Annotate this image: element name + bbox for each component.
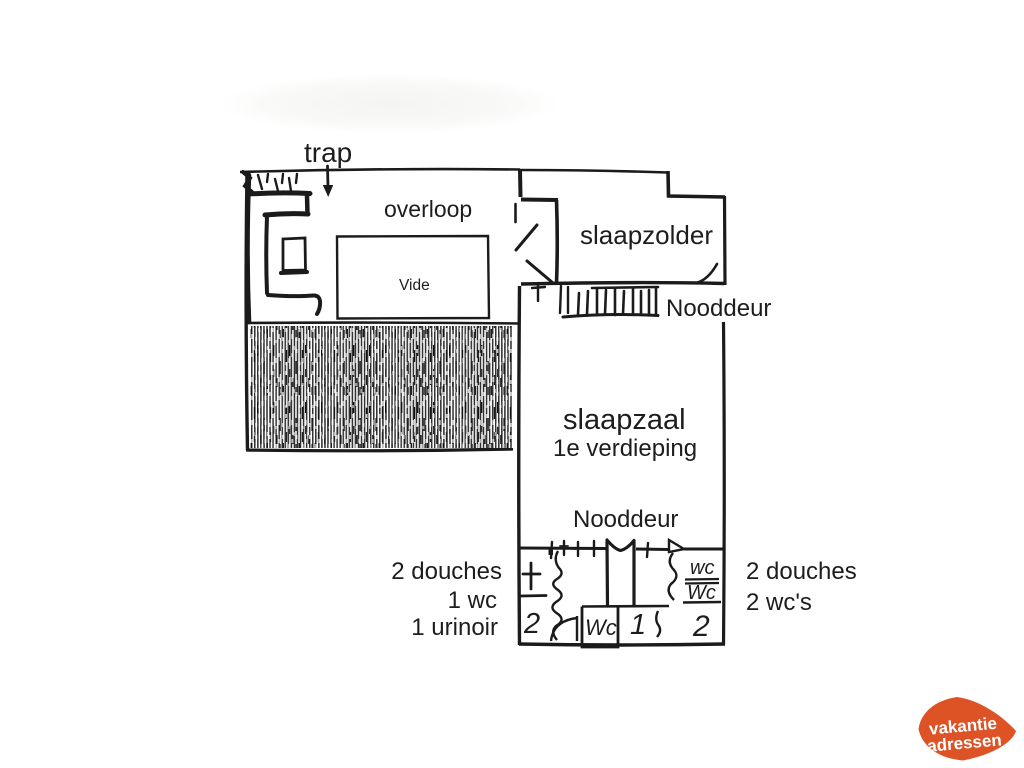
svg-text:wc: wc xyxy=(690,557,714,579)
svg-text:slaapzolder: slaapzolder xyxy=(580,220,713,250)
svg-text:Vide: Vide xyxy=(399,277,430,294)
svg-text:2: 2 xyxy=(692,610,710,643)
svg-text:2: 2 xyxy=(523,608,540,640)
svg-text:trap: trap xyxy=(304,137,352,168)
svg-text:2 douches: 2 douches xyxy=(746,558,857,585)
svg-text:slaapzaal: slaapzaal xyxy=(563,404,686,436)
svg-text:2 wc's: 2 wc's xyxy=(746,589,812,616)
svg-text:Wc: Wc xyxy=(585,615,617,640)
svg-text:Nooddeur: Nooddeur xyxy=(666,295,771,322)
svg-text:1: 1 xyxy=(630,609,646,641)
svg-text:overloop: overloop xyxy=(384,196,472,222)
svg-text:Nooddeur: Nooddeur xyxy=(573,506,678,533)
svg-text:1 wc: 1 wc xyxy=(448,587,497,614)
svg-text:1 urinoir: 1 urinoir xyxy=(411,614,498,641)
svg-text:2 douches: 2 douches xyxy=(391,558,502,585)
svg-text:Wc: Wc xyxy=(687,582,716,604)
svg-text:1e verdieping: 1e verdieping xyxy=(553,435,697,462)
